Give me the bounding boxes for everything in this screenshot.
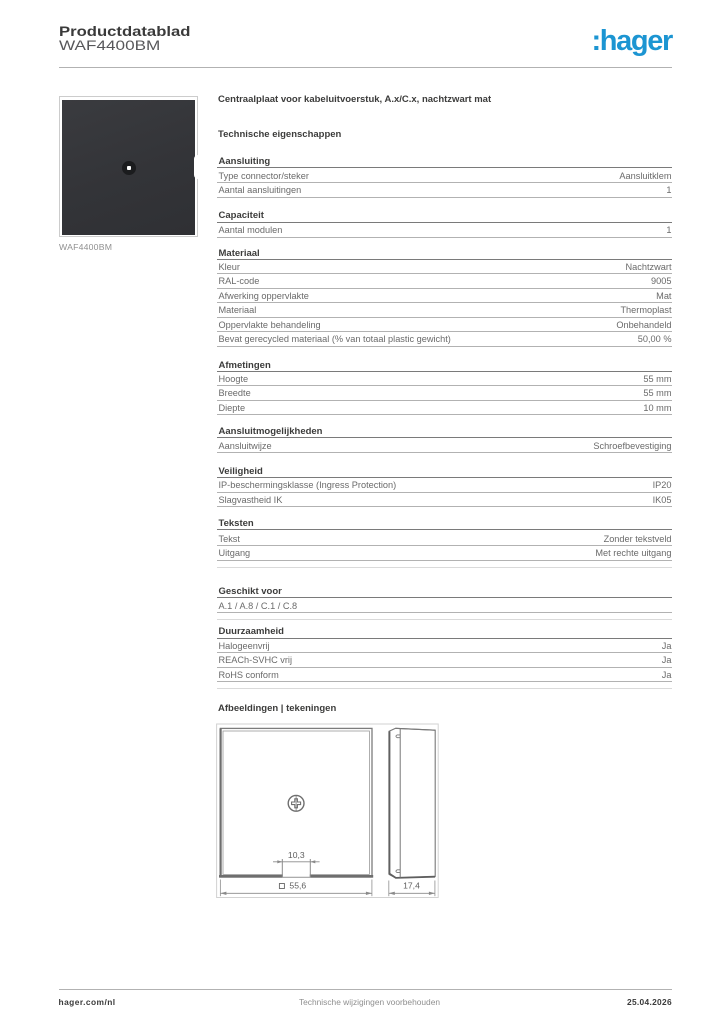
- svg-text:10,3: 10,3: [288, 850, 305, 860]
- svg-text:55,6: 55,6: [289, 881, 306, 891]
- svg-text:17,4: 17,4: [403, 881, 420, 891]
